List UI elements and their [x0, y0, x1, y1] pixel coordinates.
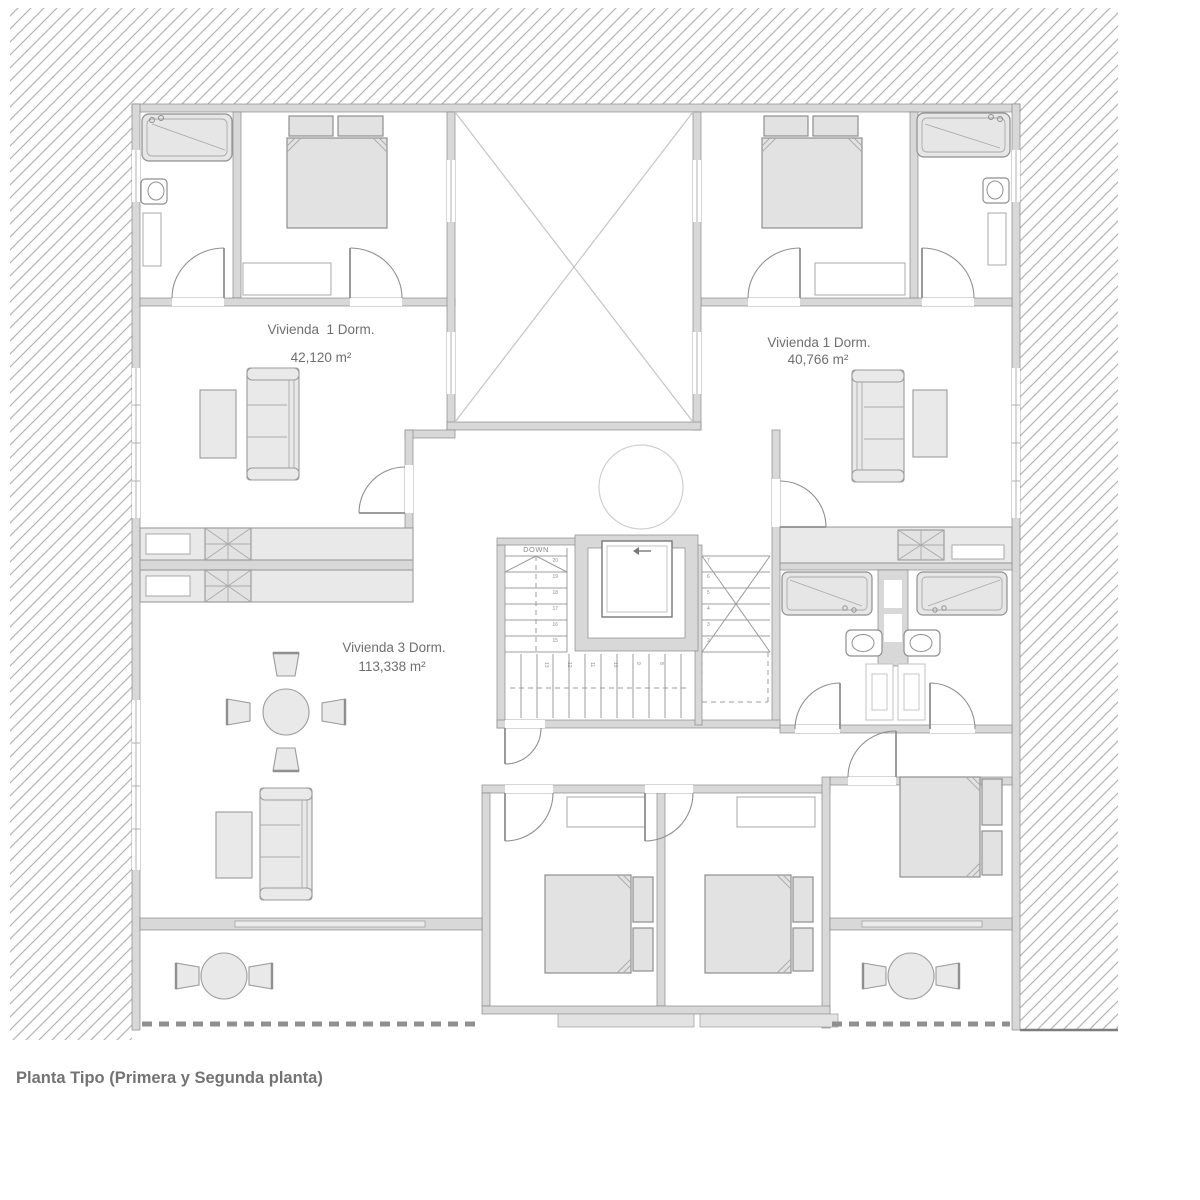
- pillow: [764, 116, 808, 136]
- mattress: [545, 875, 631, 973]
- pillow: [289, 116, 333, 136]
- svg-text:15: 15: [552, 638, 558, 644]
- stair-down-label: DOWN: [523, 545, 549, 554]
- sink-icon: [205, 570, 251, 602]
- window-left-bath: [132, 150, 140, 202]
- window-lightwell-right-1: [693, 160, 701, 222]
- wall-lightwell-bottom: [447, 422, 701, 430]
- counter-inset: [146, 576, 190, 596]
- pillow: [793, 928, 813, 971]
- washbasin-icon: [846, 630, 882, 656]
- toilet-icon: [141, 179, 167, 204]
- window-left-living: [132, 368, 140, 518]
- kitchen-bottom-unit: [140, 570, 413, 602]
- svg-text:20: 20: [552, 558, 558, 564]
- wall-bedBC-divider: [822, 777, 830, 1028]
- shower-tray-icon: [898, 664, 925, 720]
- pillow: [793, 877, 813, 922]
- svg-text:3: 3: [707, 622, 710, 628]
- terraceL-slider: [235, 921, 425, 927]
- bathtub-icon: [917, 572, 1007, 615]
- wall-kitchen-divider: [140, 560, 413, 570]
- hatch-top-region: [10, 8, 1118, 104]
- svg-text:12: 12: [566, 662, 572, 668]
- svg-text:6: 6: [707, 574, 710, 580]
- window-left-bottom-living: [132, 700, 140, 870]
- unit-bottom-name: Vivienda 3 Dorm.: [342, 640, 445, 655]
- svg-text:10: 10: [612, 662, 618, 668]
- svg-text:5: 5: [707, 590, 710, 596]
- vanity: [988, 213, 1006, 265]
- wall-bedrooms-bottom: [482, 1006, 830, 1014]
- outer-wall-left: [132, 104, 140, 1030]
- kitchen-left-unit: [140, 528, 413, 560]
- shower-tray-icon: [866, 664, 893, 720]
- svg-text:8: 8: [658, 662, 664, 665]
- wall-tl-bath-divider: [233, 112, 241, 298]
- toilet-icon: [983, 178, 1009, 203]
- svg-text:11: 11: [589, 662, 595, 667]
- unit-right-area: 40,766 m²: [788, 352, 849, 367]
- terrace-table: [888, 953, 934, 999]
- mattress: [287, 138, 387, 228]
- svg-text:2: 2: [707, 638, 710, 644]
- unit-left-name: Vivienda 1 Dorm.: [267, 322, 374, 337]
- chair-icon: [273, 748, 299, 771]
- hatch-right-region: [1020, 104, 1118, 1030]
- wall-bedA-left: [482, 793, 490, 1006]
- window-lightwell-right-2: [693, 332, 701, 394]
- pillow: [982, 779, 1002, 825]
- hatch-left-region: [10, 104, 132, 1040]
- kitchen-right-unit: [780, 527, 1012, 563]
- closet-bedA: [567, 797, 645, 827]
- svg-text:4: 4: [707, 606, 710, 612]
- vanity: [143, 213, 161, 266]
- coffee-table: [216, 812, 252, 878]
- chair-icon: [176, 963, 199, 989]
- bathtub-icon: [917, 113, 1010, 157]
- counter-inset: [146, 534, 190, 554]
- svg-text:17: 17: [552, 606, 558, 612]
- bathtub-icon: [142, 114, 232, 161]
- washbasin-icon: [904, 630, 940, 656]
- wall-hall-right: [772, 430, 780, 728]
- chair-icon: [249, 963, 272, 989]
- bathtub-icon: [782, 572, 872, 615]
- svg-text:13: 13: [543, 662, 549, 668]
- svg-text:18: 18: [552, 590, 558, 596]
- coffee-table: [913, 390, 947, 457]
- dining-table: [263, 689, 309, 735]
- sink-icon: [898, 530, 944, 560]
- svg-text:7: 7: [707, 558, 710, 564]
- elevator: [575, 535, 698, 651]
- wall-stair-left: [497, 545, 505, 728]
- pillow: [813, 116, 858, 136]
- wall-rkitchen-bottom: [780, 563, 1012, 570]
- unit-bottom-area: 113,338 m²: [358, 659, 426, 674]
- window-lightwell-left-2: [447, 332, 455, 394]
- window-right-bath: [1012, 150, 1020, 202]
- terraceR-slider: [862, 921, 982, 927]
- outer-wall-right: [1012, 104, 1020, 1030]
- wall-bedAB-divider: [657, 793, 665, 1006]
- chair-icon: [227, 699, 250, 725]
- floor-plan-svg: DOWN 20 19 18 17 16 15 13 12 11 10 9 8 7…: [0, 0, 1200, 1200]
- chair-icon: [936, 963, 959, 989]
- coffee-table: [200, 390, 236, 458]
- closet-top-left: [243, 263, 331, 295]
- sofa: [852, 370, 904, 482]
- chair-icon: [322, 699, 345, 725]
- pillow: [633, 877, 653, 922]
- balcony-ledge-B: [700, 1014, 838, 1027]
- mattress: [705, 875, 791, 973]
- sofa: [260, 788, 312, 900]
- wall-stair-top: [497, 538, 583, 545]
- unit-left-area: 42,120 m²: [291, 350, 352, 365]
- counter-inset: [952, 545, 1004, 559]
- sofa: [247, 368, 299, 480]
- floor-plan-page: DOWN 20 19 18 17 16 15 13 12 11 10 9 8 7…: [0, 0, 1200, 1200]
- window-right-living: [1012, 368, 1020, 518]
- svg-text:16: 16: [552, 622, 558, 628]
- outer-wall-top: [132, 104, 1020, 112]
- svg-text:9: 9: [635, 662, 641, 665]
- svg-text:19: 19: [552, 574, 558, 580]
- page-title: Planta Tipo (Primera y Segunda planta): [16, 1069, 323, 1087]
- chair-icon: [273, 653, 299, 676]
- pillow: [633, 928, 653, 971]
- closet-bedB: [737, 797, 815, 827]
- sink-icon: [205, 528, 251, 560]
- pillow: [982, 831, 1002, 875]
- closet-top-right: [815, 263, 905, 295]
- chair-icon: [863, 963, 886, 989]
- mattress: [900, 777, 980, 877]
- pillow: [338, 116, 383, 136]
- mattress: [762, 138, 862, 228]
- terrace-table: [201, 953, 247, 999]
- unit-right-name: Vivienda 1 Dorm.: [767, 335, 870, 350]
- window-lightwell-left-1: [447, 160, 455, 222]
- balcony-ledge-A: [558, 1014, 694, 1027]
